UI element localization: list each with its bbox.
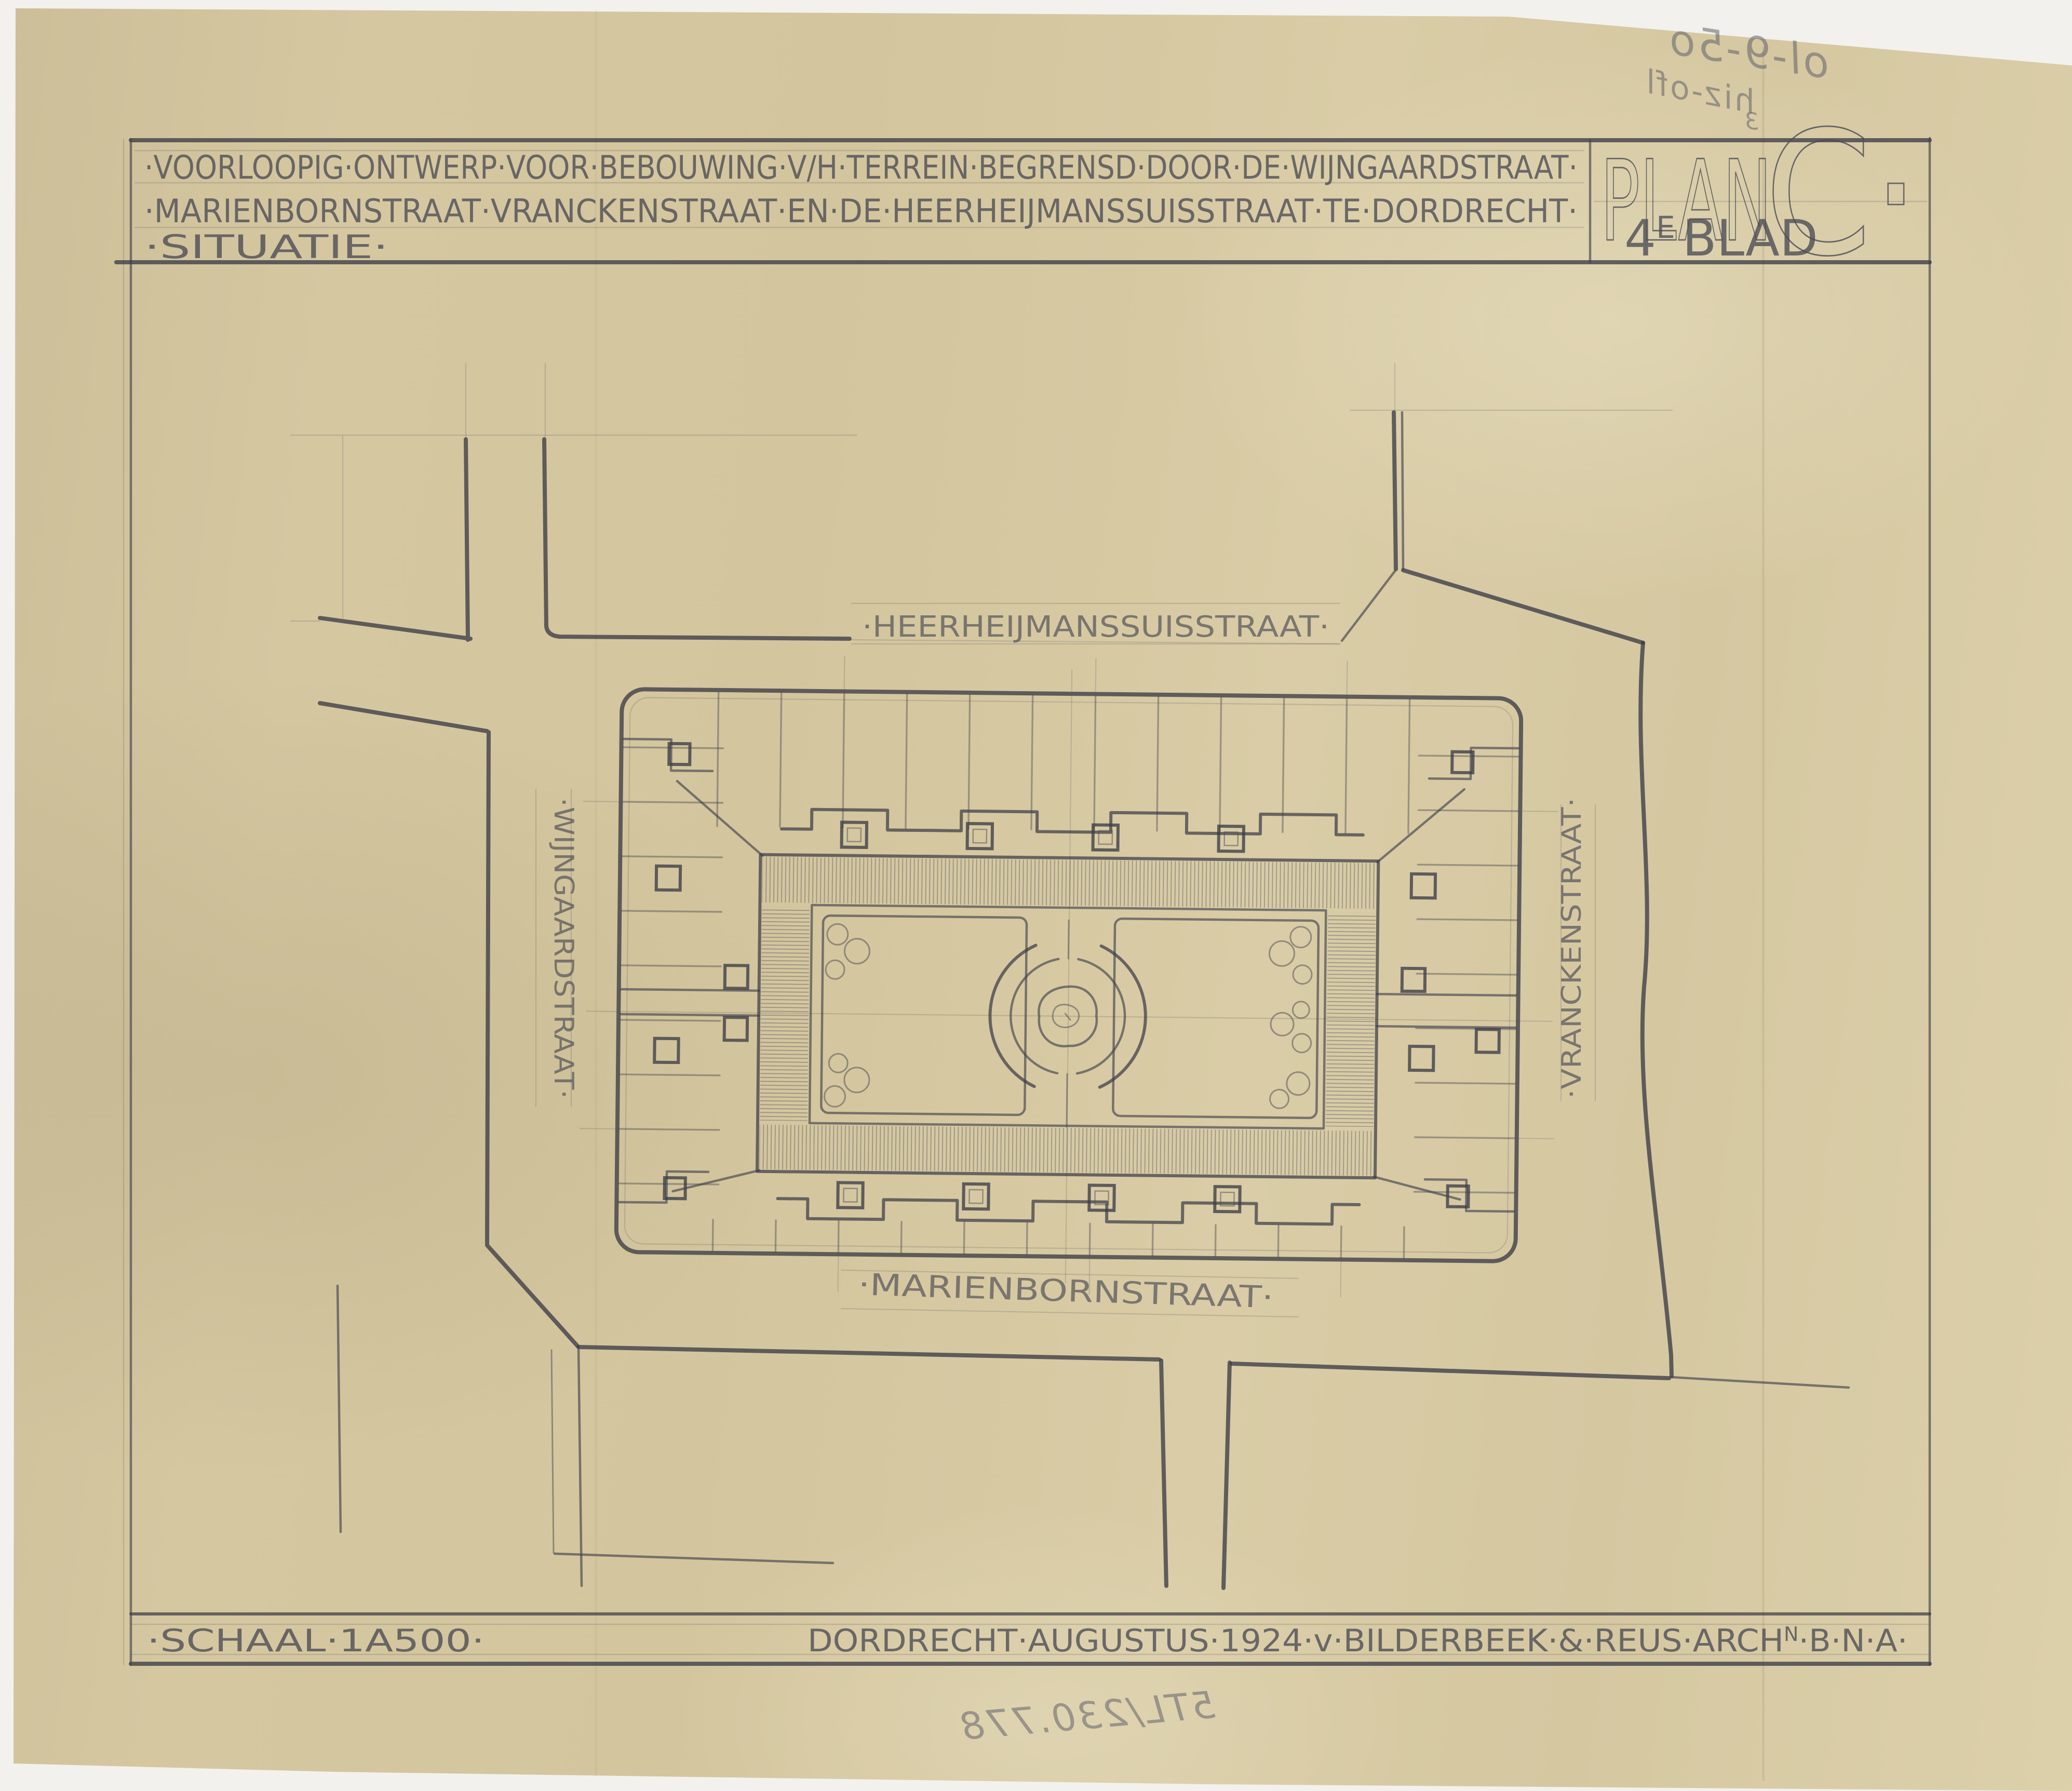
credit-suffix: ·B·N·A· xyxy=(1798,1623,1907,1659)
bottom-title-bar: ·SCHAAL·1A500· DORDRECHT·AUGUSTUS·1924·v… xyxy=(147,1623,1907,1659)
credit-prefix: DORDRECHT·AUGUSTUS·1924·v·BILDERBEEK·&·R… xyxy=(808,1623,1784,1659)
site-plan-drawing: ·VOORLOOPIG·ONTWERP·VOOR·BEBOUWING·V/H·T… xyxy=(0,0,2072,1791)
title-line-2: ·MARIENBORNSTRAAT·VRANCKENSTRAAT·EN·DE·H… xyxy=(144,192,1578,230)
scale-label: ·SCHAAL·1A500· xyxy=(147,1623,485,1659)
blad-superscript: E xyxy=(1656,210,1675,245)
housing-block xyxy=(578,653,1559,1299)
rear-wall-zigzag-bottom xyxy=(777,1199,1359,1224)
title-line-3: ·SITUATIE· xyxy=(144,228,388,266)
party-walls-top xyxy=(717,655,1410,833)
title-line-1: ·VOORLOOPIG·ONTWERP·VOOR·BEBOUWING·V/H·T… xyxy=(144,149,1578,186)
blad-number: 4 xyxy=(1624,209,1656,267)
credit-superscript: N xyxy=(1784,1623,1798,1646)
blad-label: 4EBLAD xyxy=(1624,209,1818,267)
surrounding-streets xyxy=(291,363,1849,1588)
street-labels: ·HEERHEIJMANSSUISSTRAAT· ·WIJNGAARDSTRAA… xyxy=(548,610,1587,1315)
street-label-right: ·VRANCKENSTRAAT· xyxy=(1556,798,1587,1099)
rear-wall-zigzag-top xyxy=(782,809,1363,835)
street-label-left: ·WIJNGAARDSTRAAT· xyxy=(548,798,579,1099)
street-label-top: ·HEERHEIJMANSSUISSTRAAT· xyxy=(862,610,1329,644)
blad-word: BLAD xyxy=(1683,209,1818,267)
credit-line: DORDRECHT·AUGUSTUS·1924·v·BILDERBEEK·&·R… xyxy=(808,1623,1907,1659)
scanned-drawing-sheet: { "sheet": { "title_line1": "·VOORLOOPIG… xyxy=(0,0,2072,1791)
